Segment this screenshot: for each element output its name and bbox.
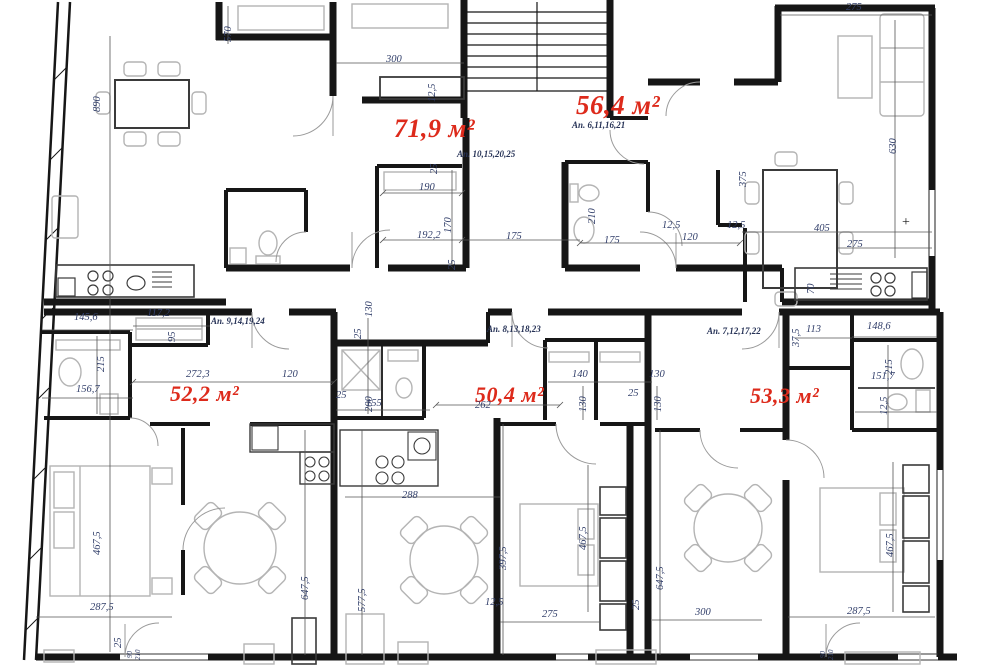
dimension-label: 145,6 [74, 313, 98, 324]
dimension-label: 647,5 [656, 566, 667, 590]
area-label: 56,4 м² [576, 92, 660, 119]
dimension-label: 12,5 [727, 221, 745, 232]
dimension-label: 120 [282, 370, 298, 381]
dimension-label: 25 [336, 391, 347, 402]
dimension-label: 647,5 [301, 576, 312, 600]
apartment-label: Ап. 8,13,18,23 [487, 325, 541, 334]
dimension-label: 12,5 [428, 84, 439, 102]
dimension-label: 262 [475, 401, 491, 412]
dimension-label: 117,2 [147, 309, 170, 320]
dimension-label: 25 [430, 164, 441, 175]
dimension-label: 95 [168, 332, 179, 343]
dimension-label: 275 [846, 3, 862, 14]
dimension-label: 275 [847, 240, 863, 251]
dimension-label: 130 [649, 370, 665, 381]
apartment-label: Ап. 6,11,16,21 [572, 121, 625, 130]
dimension-label: 12,5 [485, 598, 503, 609]
dimension-label: 467,5 [886, 533, 897, 557]
dimension-label: 120 [682, 233, 698, 244]
dimension-label: 397,5 [499, 546, 510, 570]
dimension-label: 215 [97, 356, 108, 372]
dimension-label: 300 [386, 55, 402, 66]
dimension-label: 12,5 [662, 221, 680, 232]
dimension-label: 210 [588, 208, 599, 224]
dimension-label: 467,5 [93, 531, 104, 555]
dimension-label: 148,6 [867, 322, 891, 333]
door-size-label: 210 [135, 650, 142, 661]
dimension-label: 130 [579, 396, 590, 412]
dimension-label: 287,5 [847, 607, 871, 618]
dimension-label: 630 [889, 138, 900, 154]
dimension-label: 272,3 [186, 370, 210, 381]
dimension-label: 192,2 [417, 231, 441, 242]
dimension-label: 156,7 [76, 385, 100, 396]
dimension-label: 577,5 [358, 588, 369, 612]
area-label: 52,2 м² [170, 383, 239, 405]
dimension-label: 25 [632, 600, 643, 611]
dimension-label: 190 [419, 183, 435, 194]
dimension-label: 405 [814, 224, 830, 235]
dimension-label: 570 [224, 26, 235, 42]
door-size-label: 210 [828, 650, 835, 661]
dimension-label: 130 [654, 396, 665, 412]
dimension-label: 25 [114, 638, 125, 649]
dimension-label: 300 [695, 608, 711, 619]
area-label: 53,3 м² [750, 385, 819, 407]
dimension-label: 175 [506, 232, 522, 243]
area-label: 71,9 м² [394, 116, 475, 142]
dimension-label: 170 [444, 217, 455, 233]
door-size-label: 90 [820, 651, 827, 658]
dimension-label: 37,5 [792, 329, 803, 347]
dimension-label: 890 [93, 96, 104, 112]
door-size-label: 90 [127, 651, 134, 658]
dimension-label: 375 [739, 171, 750, 187]
apartment-label: Ап. 10,15,20,25 [457, 150, 515, 159]
dimension-label: 25 [354, 329, 365, 340]
floor-plan-drawing: 71,9 м²56,4 м²52,2 м²50,4 м²53,3 м²Ап. 1… [0, 0, 1000, 666]
dimension-label: 288 [402, 491, 418, 502]
dimension-label: 175 [604, 236, 620, 247]
dimension-label: 215 [885, 359, 896, 375]
dimension-label: 275 [542, 610, 558, 621]
dimension-label: 113 [806, 325, 821, 336]
dimension-label: 70 [807, 284, 818, 295]
dimension-label: 200 [365, 396, 376, 412]
annotation-layer: 71,9 м²56,4 м²52,2 м²50,4 м²53,3 м²Ап. 1… [0, 0, 1000, 666]
dimension-label: 130 [365, 301, 376, 317]
dimension-label: 467,5 [579, 526, 590, 550]
dimension-label: 25 [628, 389, 639, 400]
dimension-label: 25 [448, 260, 459, 271]
plus-marker: + [902, 216, 910, 230]
apartment-label: Ап. 7,12,17,22 [707, 327, 761, 336]
apartment-label: Ап. 9,14,19,24 [211, 317, 265, 326]
dimension-label: 12,5 [880, 397, 891, 415]
dimension-label: 140 [572, 370, 588, 381]
dimension-label: 287,5 [90, 603, 114, 614]
